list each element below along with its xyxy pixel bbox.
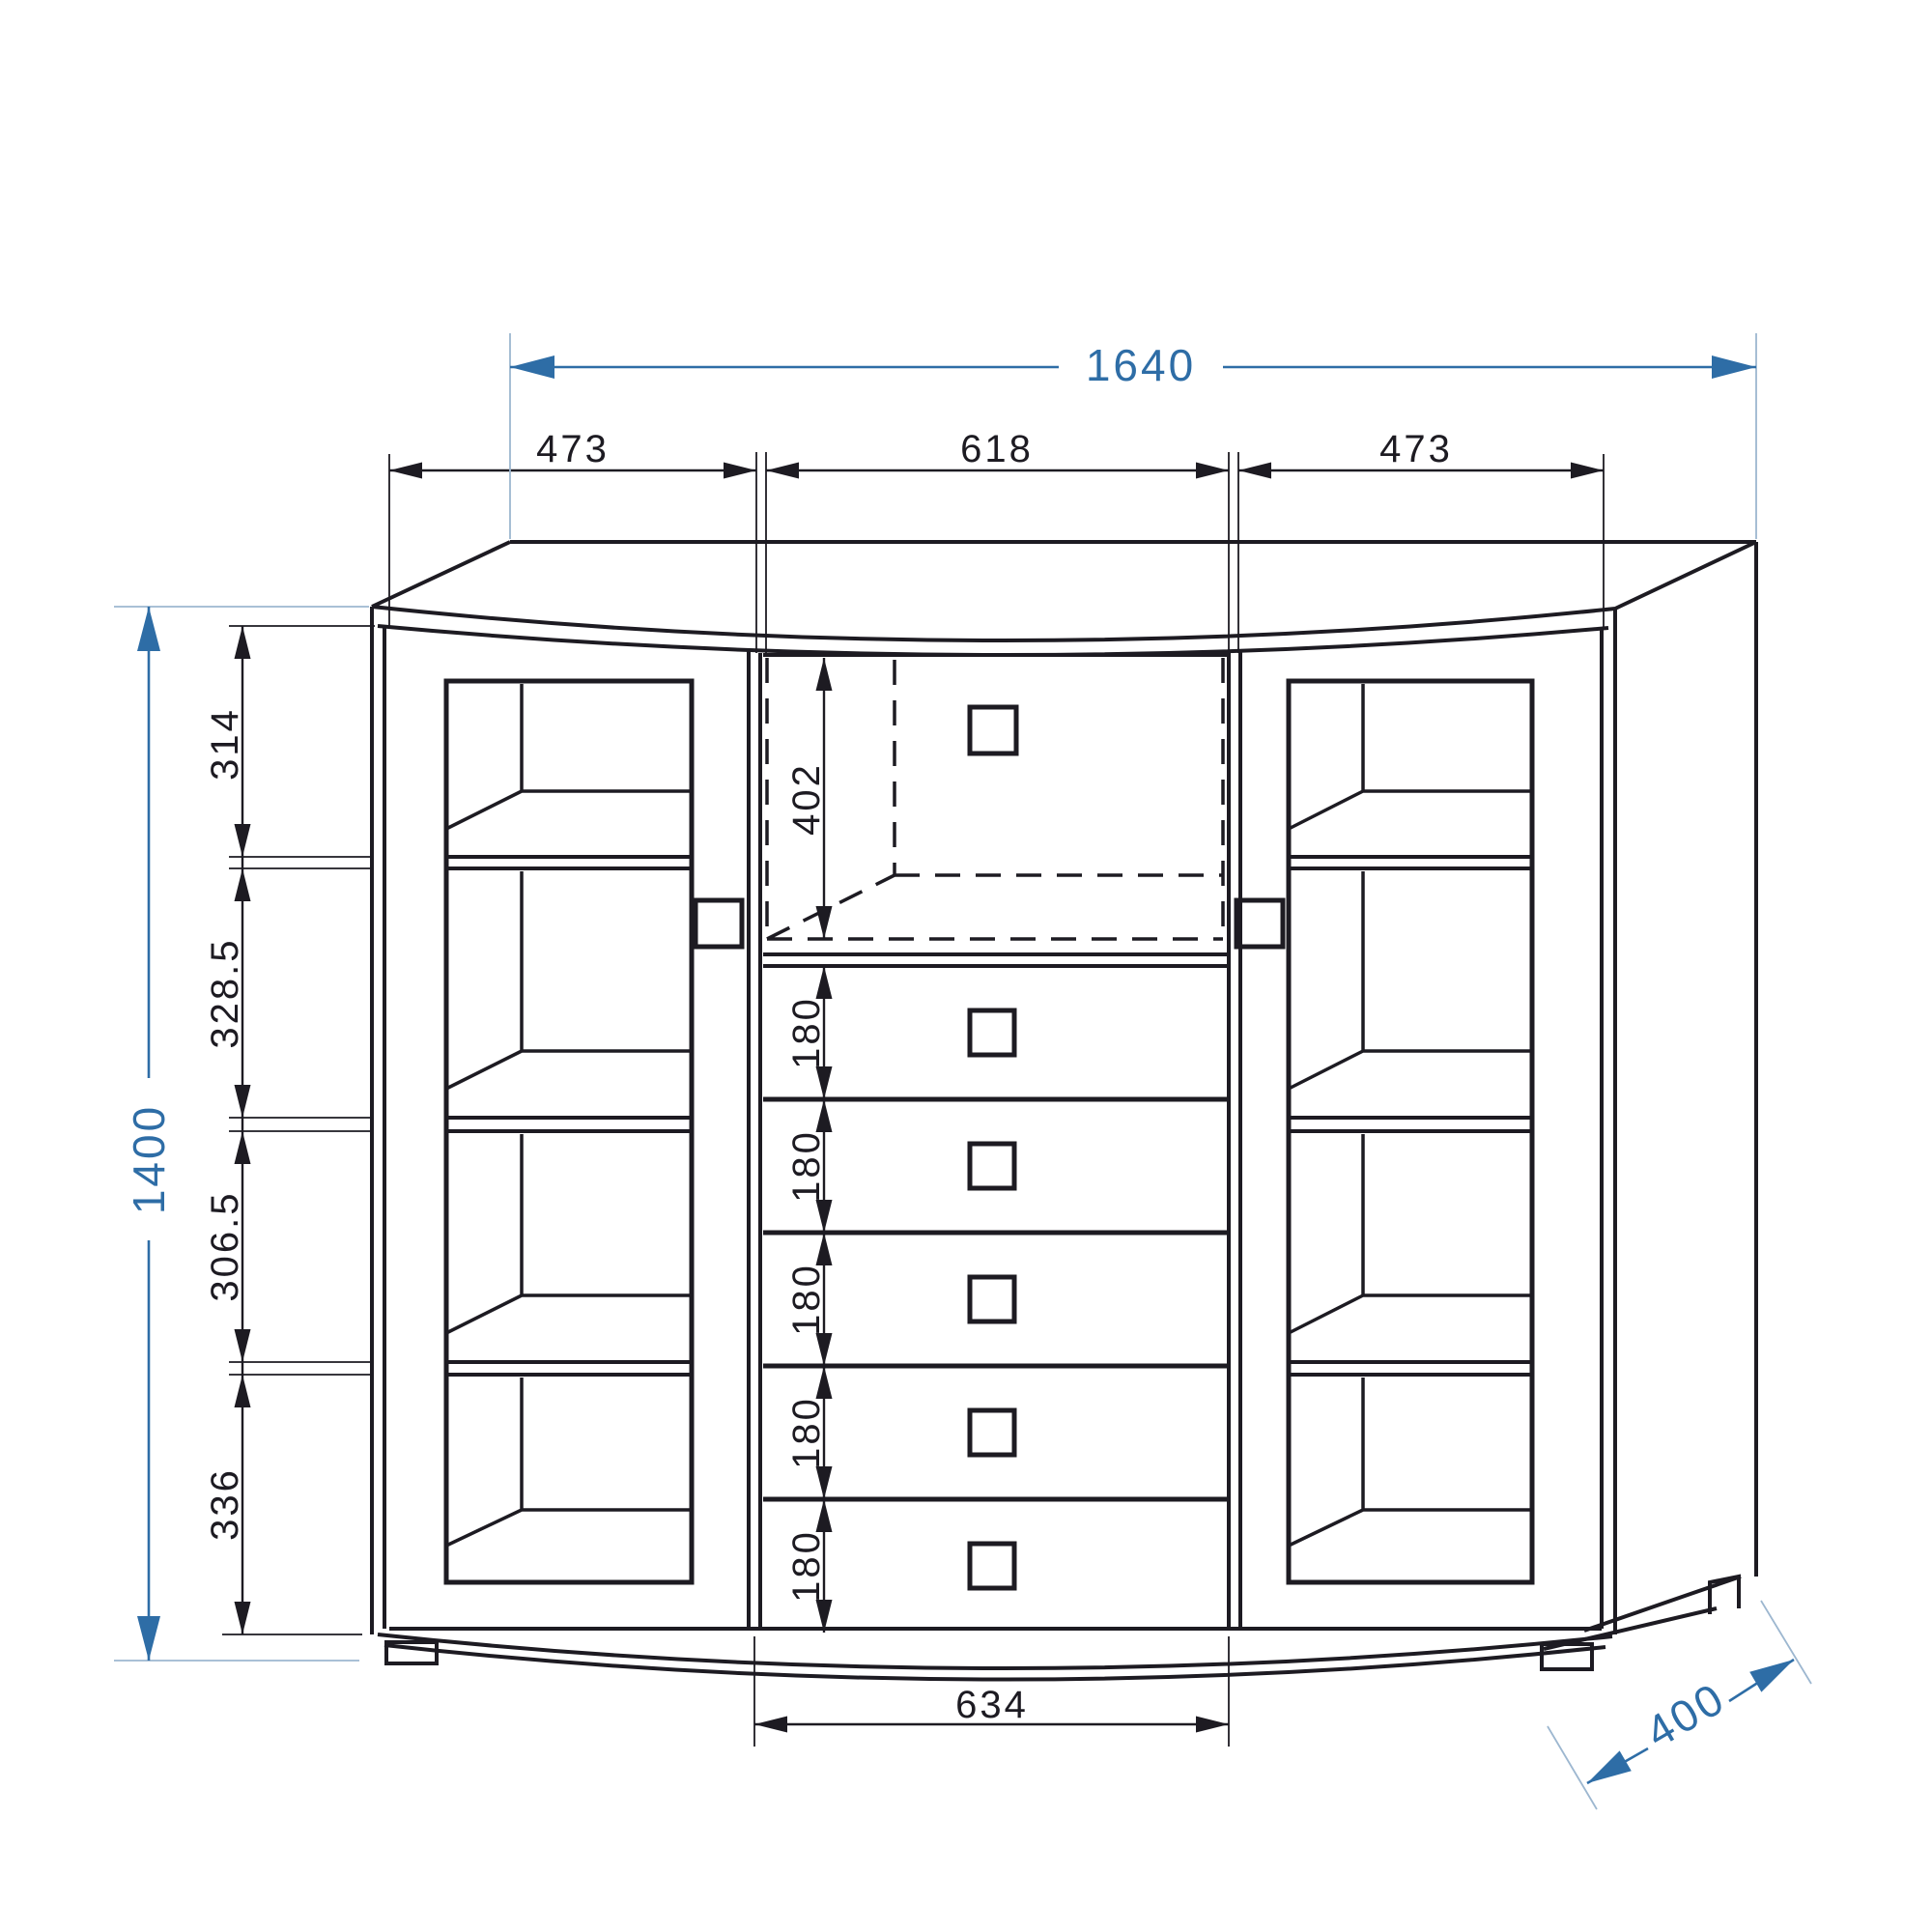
dim-label-section-right: 473 [1379, 428, 1453, 470]
dim-label-overall-width: 1640 [1086, 340, 1196, 390]
dim-label-section-center: 618 [960, 428, 1034, 470]
dim-label-drawer-5: 180 [785, 1529, 828, 1603]
dim-label-drawer-2: 180 [785, 1129, 828, 1203]
dim-label-niche-height: 402 [785, 762, 828, 836]
dim-label-left-4: 336 [204, 1467, 246, 1541]
dim-label-drawer-3: 180 [785, 1263, 828, 1336]
dim-label-left-1: 314 [204, 707, 246, 781]
dim-label-left-3: 306.5 [204, 1190, 246, 1301]
dim-label-drawers-width: 634 [955, 1684, 1029, 1726]
dim-label-drawer-1: 180 [785, 996, 828, 1069]
cabinet-dimension-drawing: 473 618 473 314 328.5 306.5 336 402 180 … [0, 0, 1932, 1932]
dim-label-drawer-4: 180 [785, 1396, 828, 1469]
dim-label-section-left: 473 [536, 428, 610, 470]
dim-label-overall-height: 1400 [124, 1104, 174, 1214]
technical-drawing-page: 473 618 473 314 328.5 306.5 336 402 180 … [0, 0, 1932, 1932]
dim-label-left-2: 328.5 [204, 937, 246, 1048]
